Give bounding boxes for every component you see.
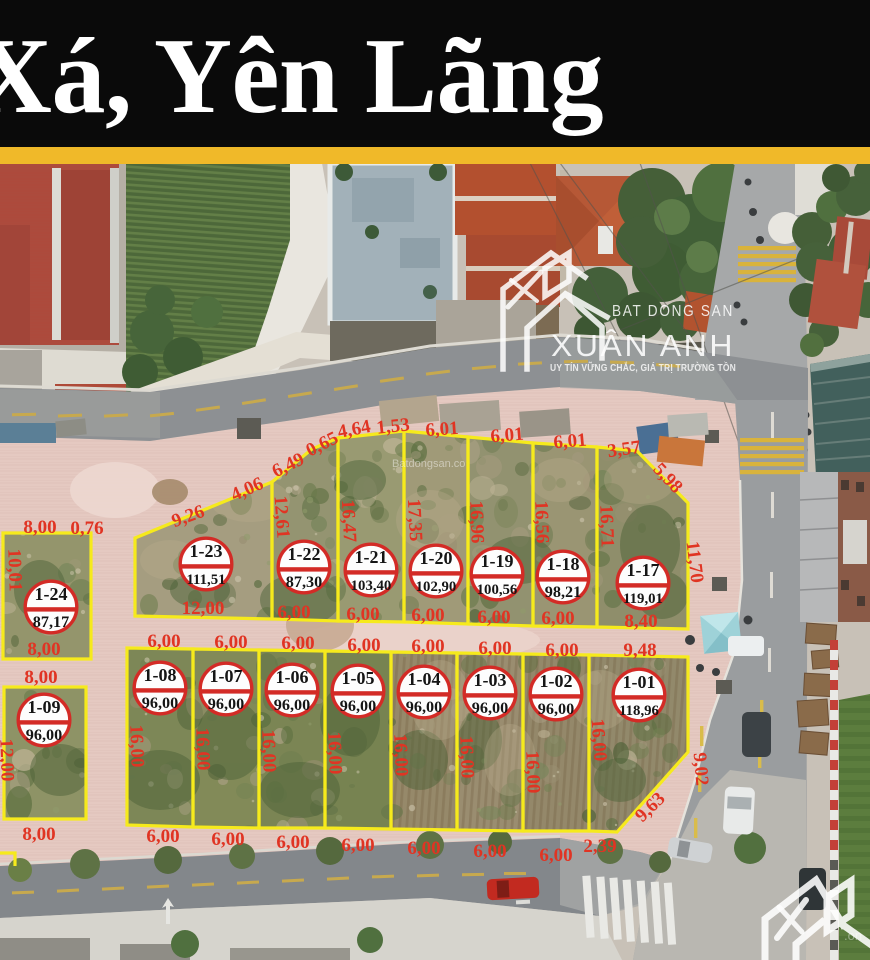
svg-text:16,56: 16,56 bbox=[530, 500, 552, 543]
svg-text:96,00: 96,00 bbox=[26, 726, 62, 744]
svg-text:1-20: 1-20 bbox=[420, 548, 453, 568]
svg-text:103,40: 103,40 bbox=[351, 578, 392, 594]
svg-text:1-06: 1-06 bbox=[276, 667, 309, 687]
svg-text:6,00: 6,00 bbox=[411, 605, 444, 626]
svg-text:1-04: 1-04 bbox=[408, 669, 441, 689]
svg-text:16,00: 16,00 bbox=[587, 718, 611, 762]
svg-text:6,01: 6,01 bbox=[490, 424, 525, 448]
svg-text:12,61: 12,61 bbox=[270, 495, 294, 539]
svg-text:16,00: 16,00 bbox=[455, 735, 477, 778]
svg-text:9,48: 9,48 bbox=[623, 640, 656, 661]
svg-text:16,96: 16,96 bbox=[465, 500, 487, 543]
svg-text:8,00: 8,00 bbox=[22, 824, 55, 845]
svg-text:96,00: 96,00 bbox=[406, 698, 442, 716]
svg-text:16,47: 16,47 bbox=[337, 499, 360, 543]
svg-text:96,00: 96,00 bbox=[340, 697, 376, 715]
svg-text:.on: .on bbox=[844, 928, 862, 943]
svg-text:6,00: 6,00 bbox=[214, 632, 247, 653]
svg-text:96,00: 96,00 bbox=[538, 700, 574, 718]
svg-text:0,76: 0,76 bbox=[70, 518, 103, 539]
svg-text:6,00: 6,00 bbox=[276, 832, 309, 853]
svg-text:119,01: 119,01 bbox=[623, 591, 663, 607]
svg-text:8,00: 8,00 bbox=[24, 667, 57, 688]
svg-text:16,00: 16,00 bbox=[521, 750, 543, 793]
svg-text:8,00: 8,00 bbox=[27, 639, 60, 660]
svg-text:XUÂN ANH: XUÂN ANH bbox=[551, 328, 735, 363]
svg-text:1-23: 1-23 bbox=[190, 541, 223, 561]
svg-text:9,02: 9,02 bbox=[689, 752, 713, 787]
svg-text:98,21: 98,21 bbox=[545, 583, 581, 601]
svg-text:1-07: 1-07 bbox=[210, 666, 243, 686]
svg-text:118,96: 118,96 bbox=[619, 703, 659, 719]
svg-text:6,00: 6,00 bbox=[277, 602, 310, 623]
svg-text:6,01: 6,01 bbox=[553, 430, 588, 454]
svg-text:87,30: 87,30 bbox=[286, 573, 322, 591]
svg-text:1-24: 1-24 bbox=[35, 584, 68, 604]
svg-text:6,00: 6,00 bbox=[341, 835, 374, 856]
svg-text:1-05: 1-05 bbox=[342, 668, 375, 688]
svg-text:111,51: 111,51 bbox=[186, 572, 225, 588]
svg-text:16,71: 16,71 bbox=[595, 504, 617, 547]
svg-text:96,00: 96,00 bbox=[274, 696, 310, 714]
svg-text:6,00: 6,00 bbox=[473, 841, 506, 862]
svg-text:1-03: 1-03 bbox=[474, 670, 507, 690]
svg-text:1-19: 1-19 bbox=[481, 551, 514, 571]
svg-text:6,00: 6,00 bbox=[541, 608, 574, 629]
svg-text:Batdongsan.co: Batdongsan.co bbox=[392, 458, 465, 470]
svg-text:6,00: 6,00 bbox=[211, 829, 244, 850]
svg-text:1-08: 1-08 bbox=[144, 665, 177, 685]
svg-text:100,56: 100,56 bbox=[477, 582, 518, 598]
svg-text:96,00: 96,00 bbox=[142, 694, 178, 712]
svg-text:6,00: 6,00 bbox=[411, 636, 444, 657]
svg-text:6,00: 6,00 bbox=[407, 838, 440, 859]
svg-text:BAT DONG SAN: BAT DONG SAN bbox=[612, 303, 734, 320]
svg-text:96,00: 96,00 bbox=[208, 695, 244, 713]
svg-text:6,00: 6,00 bbox=[545, 640, 578, 661]
svg-text:6,00: 6,00 bbox=[147, 631, 180, 652]
svg-text:12,00: 12,00 bbox=[182, 598, 225, 619]
svg-text:6,01: 6,01 bbox=[425, 418, 460, 441]
svg-text:10,01: 10,01 bbox=[3, 548, 25, 591]
svg-text:102,90: 102,90 bbox=[416, 579, 457, 595]
svg-text:8,40: 8,40 bbox=[624, 611, 657, 632]
svg-text:2,39: 2,39 bbox=[583, 836, 616, 857]
svg-text:96,00: 96,00 bbox=[472, 699, 508, 717]
svg-text:8,00: 8,00 bbox=[23, 517, 56, 538]
svg-text:1-02: 1-02 bbox=[540, 671, 573, 691]
svg-text:6,00: 6,00 bbox=[347, 635, 380, 656]
svg-text:6,00: 6,00 bbox=[346, 604, 379, 625]
svg-text:16,00: 16,00 bbox=[323, 731, 345, 774]
svg-text:1,53: 1,53 bbox=[375, 414, 410, 438]
svg-text:17,35: 17,35 bbox=[403, 498, 426, 542]
svg-text:12,00: 12,00 bbox=[0, 738, 18, 781]
svg-text:1-01: 1-01 bbox=[623, 672, 656, 692]
svg-text:UY TÍN VỮNG CHẮC, GIÁ TRỊ TRƯỜ: UY TÍN VỮNG CHẮC, GIÁ TRỊ TRƯỜNG TỒN bbox=[550, 361, 736, 374]
svg-text:1-18: 1-18 bbox=[547, 554, 580, 574]
svg-text:6,00: 6,00 bbox=[477, 607, 510, 628]
svg-text:16,00: 16,00 bbox=[257, 729, 279, 772]
svg-text:1-22: 1-22 bbox=[288, 544, 321, 564]
svg-text:16,00: 16,00 bbox=[389, 733, 411, 776]
svg-text:Xá, Yên Lãng: Xá, Yên Lãng bbox=[0, 17, 603, 136]
svg-text:1-21: 1-21 bbox=[355, 547, 388, 567]
svg-text:16,00: 16,00 bbox=[191, 727, 213, 770]
svg-text:6,00: 6,00 bbox=[146, 826, 179, 847]
svg-text:87,17: 87,17 bbox=[33, 613, 69, 631]
svg-text:6,00: 6,00 bbox=[478, 638, 511, 659]
svg-text:1-09: 1-09 bbox=[28, 697, 61, 717]
svg-text:1-17: 1-17 bbox=[627, 560, 660, 580]
svg-text:16,00: 16,00 bbox=[125, 724, 147, 767]
svg-text:6,00: 6,00 bbox=[281, 633, 314, 654]
svg-text:6,00: 6,00 bbox=[539, 845, 572, 866]
